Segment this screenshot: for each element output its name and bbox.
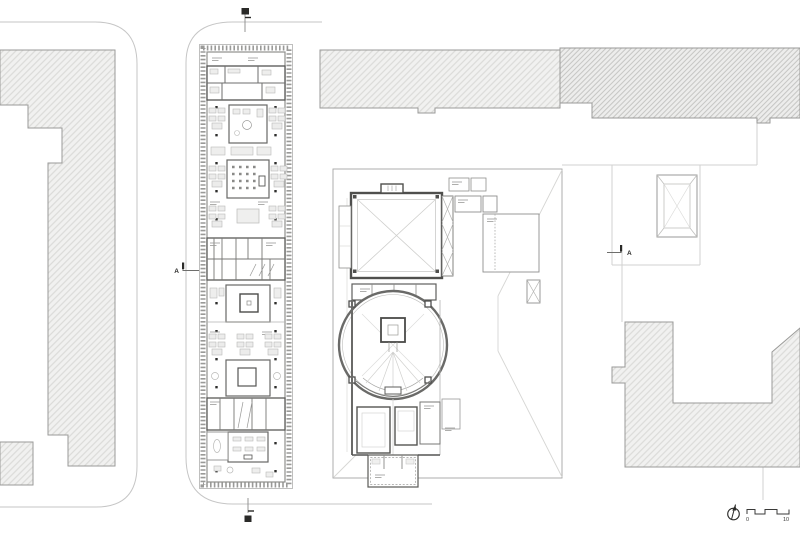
scale-bar: 0 10 — [746, 510, 789, 524]
annex-meeting-room — [227, 160, 269, 198]
site-plan-drawing: A A 0 10 — [0, 0, 800, 533]
annex-building — [200, 45, 293, 489]
east-rooms — [455, 196, 540, 303]
building-block-northeast — [560, 48, 800, 123]
section-marker-a-left: A — [174, 263, 199, 276]
site-plan-page: A A 0 10 — [0, 0, 800, 533]
annex-core-mid — [207, 238, 285, 280]
section-label-a-right: A — [627, 250, 632, 257]
entrance-block — [368, 455, 418, 487]
building-strip-north — [320, 50, 560, 113]
courtyard-pavilion-roof — [657, 175, 697, 237]
north-arrow-icon — [728, 505, 740, 520]
building-small-southwest — [0, 442, 33, 485]
section-cut-marker-bottom — [245, 498, 255, 522]
annex-core-north — [207, 66, 285, 100]
scale-ten-label: 10 — [783, 517, 789, 523]
building-block-southeast — [612, 322, 800, 467]
service-shafts — [442, 196, 453, 276]
great-hall — [339, 178, 486, 278]
section-marker-a-right: A — [607, 245, 632, 257]
building-block-west — [0, 50, 115, 466]
section-cut-marker-top — [242, 8, 252, 32]
annex-core-south — [207, 398, 285, 430]
annex-desk-row — [211, 147, 271, 155]
main-building — [333, 169, 562, 487]
annex-table — [237, 209, 259, 223]
section-label-a-left: A — [174, 268, 179, 275]
annex-lounge-room — [229, 105, 267, 143]
scale-zero-label: 0 — [746, 517, 749, 523]
